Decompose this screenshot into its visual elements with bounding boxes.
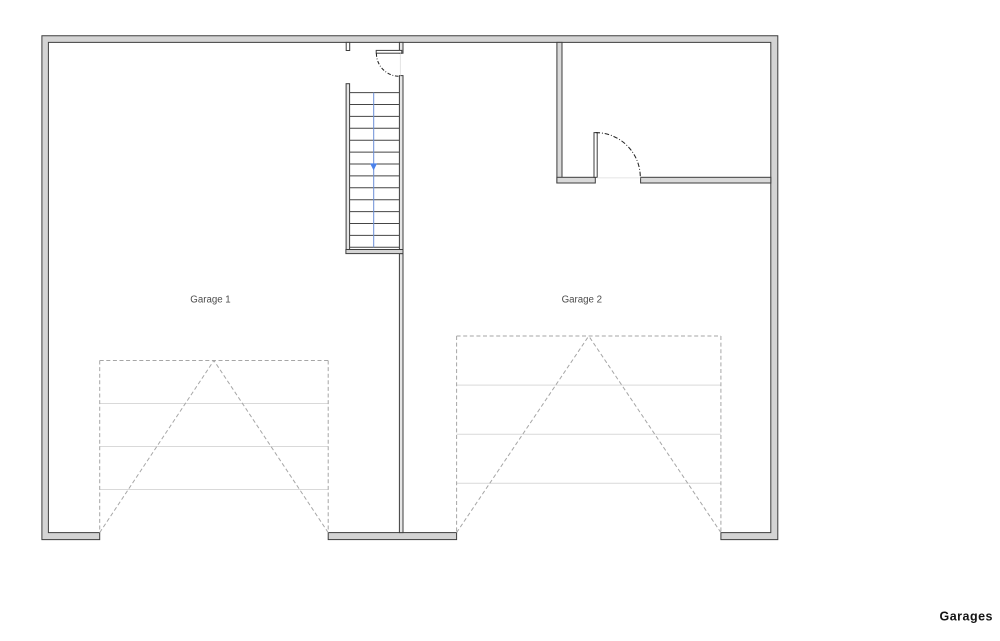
svg-text:Garages: Garages [939,610,993,624]
svg-text:Garage 1: Garage 1 [190,295,230,306]
svg-text:Garage 2: Garage 2 [562,295,602,306]
